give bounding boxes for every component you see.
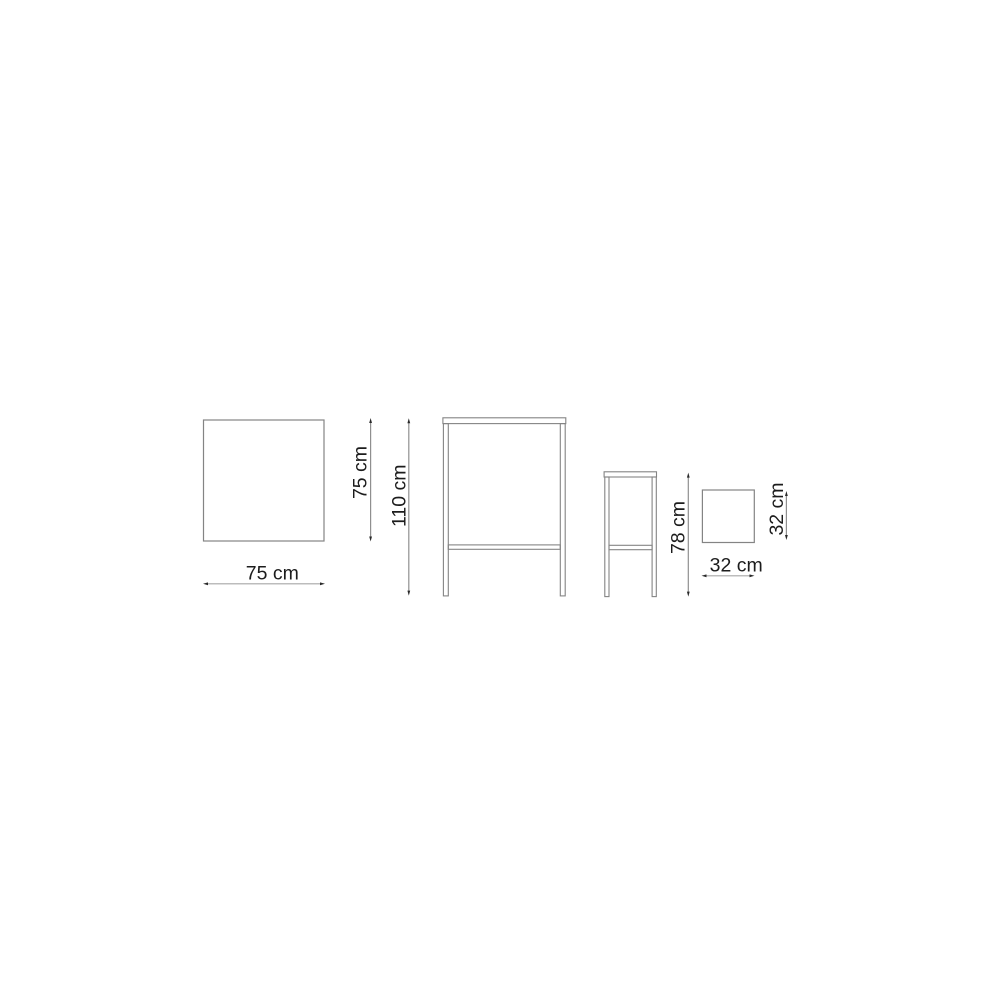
svg-text:32 cm: 32 cm bbox=[710, 555, 763, 577]
svg-text:32 cm: 32 cm bbox=[766, 482, 788, 535]
svg-text:75 cm: 75 cm bbox=[246, 563, 299, 585]
svg-text:110 cm: 110 cm bbox=[389, 465, 411, 528]
svg-text:78 cm: 78 cm bbox=[668, 501, 690, 554]
svg-text:75 cm: 75 cm bbox=[350, 446, 372, 499]
